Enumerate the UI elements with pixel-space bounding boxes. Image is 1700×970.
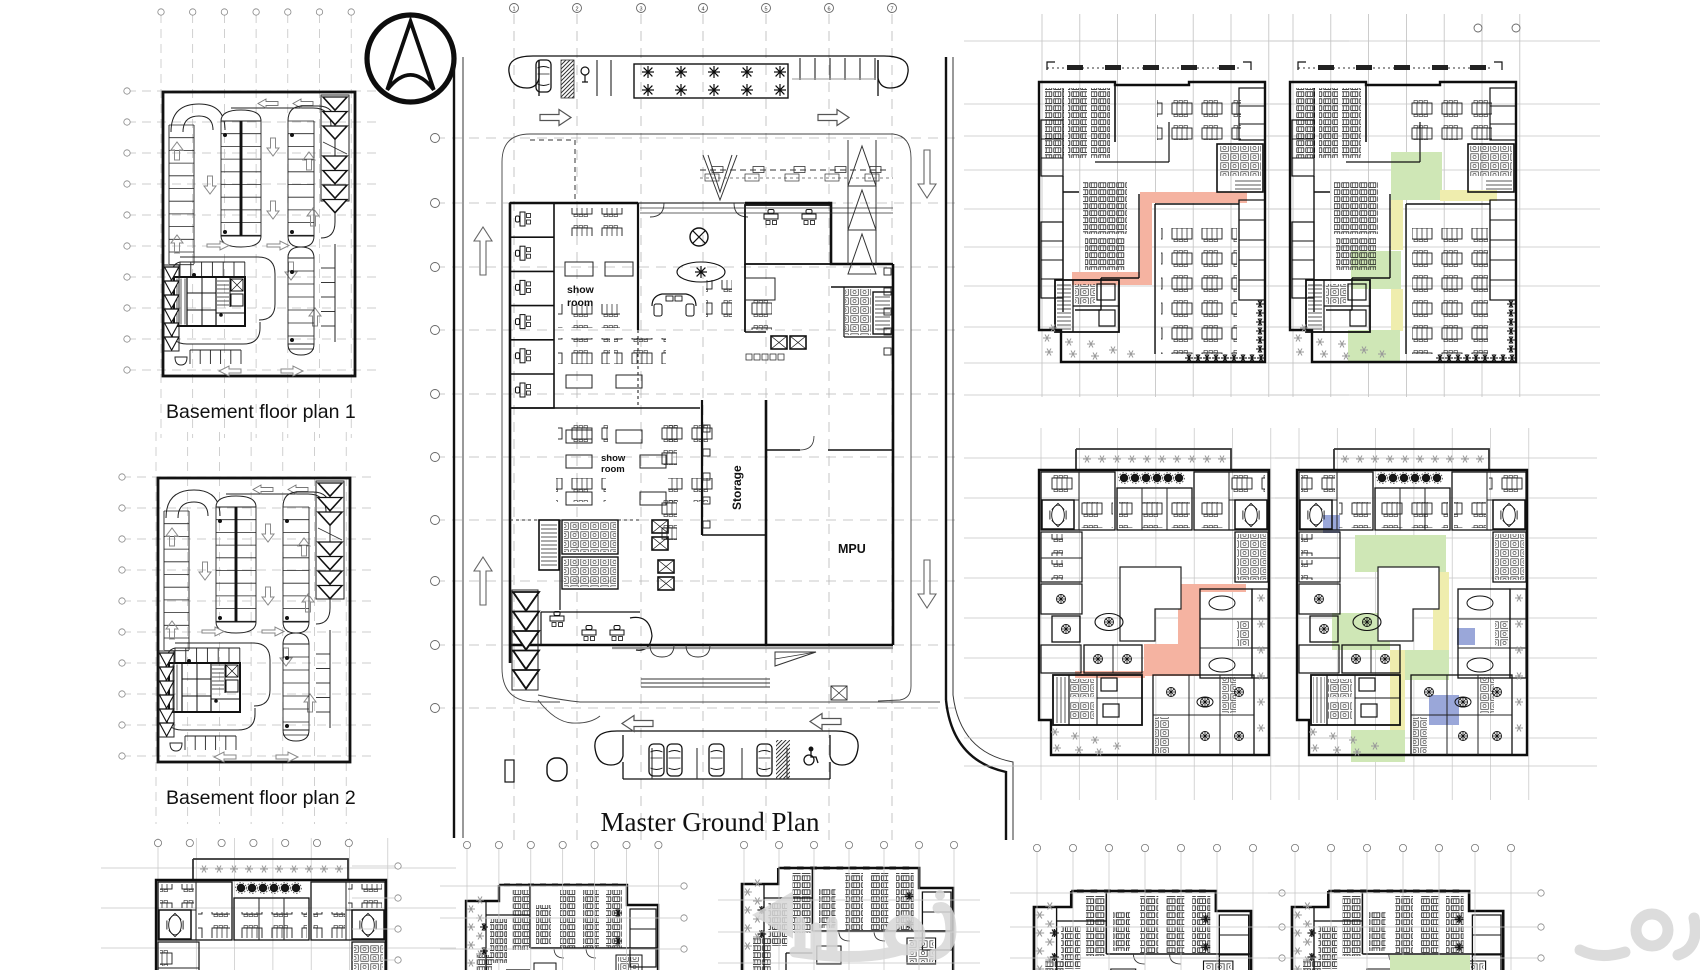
- svg-text:3: 3: [639, 7, 642, 13]
- svg-text:5: 5: [764, 7, 767, 13]
- svg-text:6: 6: [827, 7, 830, 13]
- svg-text:1: 1: [512, 7, 515, 13]
- svg-text:Master Ground Plan: Master Ground Plan: [601, 807, 820, 837]
- svg-text:Basement floor plan 2: Basement floor plan 2: [166, 787, 356, 809]
- svg-text:7: 7: [890, 7, 893, 13]
- svg-text:4: 4: [701, 7, 704, 13]
- svg-text:room: room: [601, 464, 625, 475]
- svg-text:MPU: MPU: [838, 542, 866, 556]
- svg-text:show: show: [601, 453, 626, 464]
- svg-text:2: 2: [575, 7, 578, 13]
- svg-text:room: room: [567, 297, 593, 309]
- svg-text:Basement floor plan 1: Basement floor plan 1: [166, 401, 356, 423]
- svg-text:Storage: Storage: [730, 465, 744, 510]
- svg-text:show: show: [567, 284, 595, 296]
